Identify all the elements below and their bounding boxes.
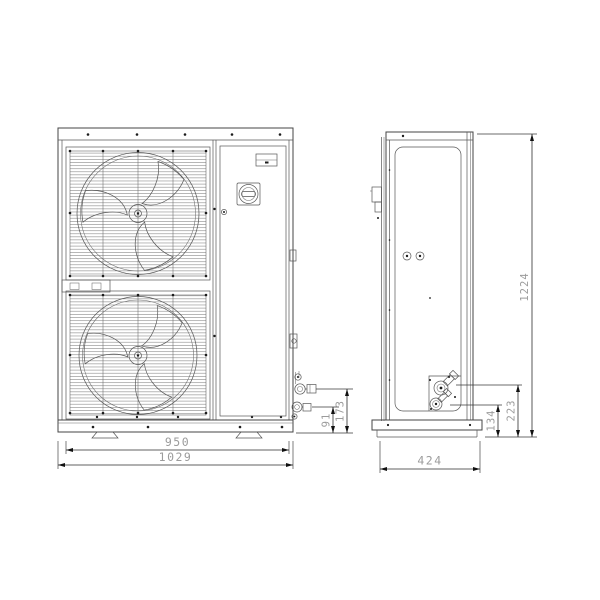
- dim-depth: 424: [380, 441, 480, 473]
- nameplate: [256, 154, 277, 166]
- dim-side-pipe-low-label: 134: [486, 410, 498, 432]
- dim-overall-height: 1224: [477, 134, 537, 437]
- dim-front-pipe-high-label: 173: [335, 400, 347, 422]
- panel-knockouts: [403, 252, 424, 260]
- back-bracket: [370, 187, 382, 219]
- rotary-switch: [237, 183, 260, 205]
- fan-grille-top: [66, 147, 210, 280]
- dim-side-pipe-high-label: 223: [506, 400, 518, 422]
- foot-right: [236, 432, 262, 438]
- foot-left: [92, 432, 118, 438]
- fan-grille-bottom: [66, 291, 210, 419]
- base-side: [372, 420, 482, 437]
- panel-screw: [221, 209, 226, 214]
- dim-depth-label: 424: [417, 454, 442, 468]
- handle-strip: [62, 280, 110, 292]
- refrigerant-valves-front: [292, 371, 316, 419]
- dim-front-pipe-low-label: 91: [321, 413, 333, 428]
- dim-overall-width-label: 1029: [159, 450, 193, 464]
- front-view: [58, 128, 316, 438]
- dim-overall-height-label: 1224: [519, 272, 531, 301]
- side-view: [370, 132, 482, 437]
- drawing-page: 950 1029 173 91: [0, 0, 600, 600]
- cabinet-side: [382, 132, 474, 421]
- dim-feet-spacing-label: 950: [165, 435, 190, 449]
- control-panel: [220, 146, 297, 416]
- technical-drawing: 950 1029 173 91: [0, 0, 600, 600]
